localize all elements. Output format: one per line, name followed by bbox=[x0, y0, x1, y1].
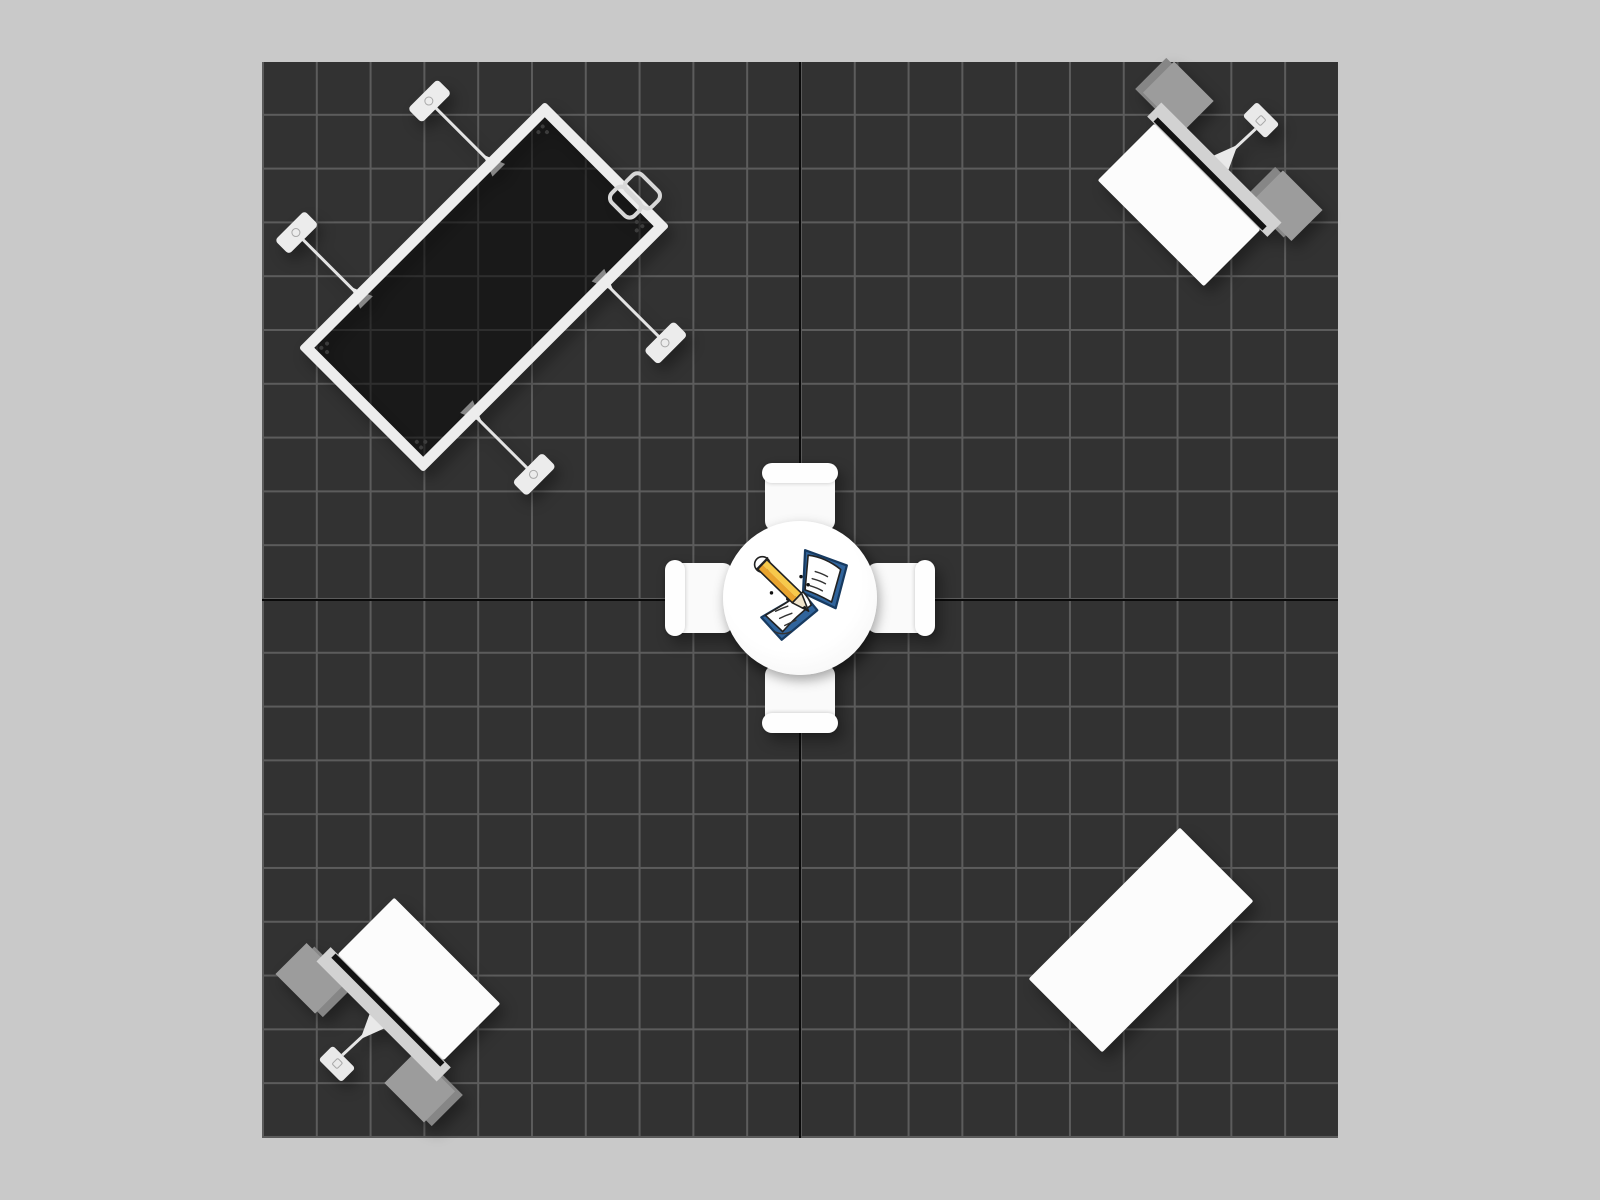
notebook-pencil-icon[interactable] bbox=[744, 542, 856, 654]
design-canvas bbox=[0, 0, 1600, 1200]
round-table-with-chairs[interactable] bbox=[655, 453, 945, 743]
